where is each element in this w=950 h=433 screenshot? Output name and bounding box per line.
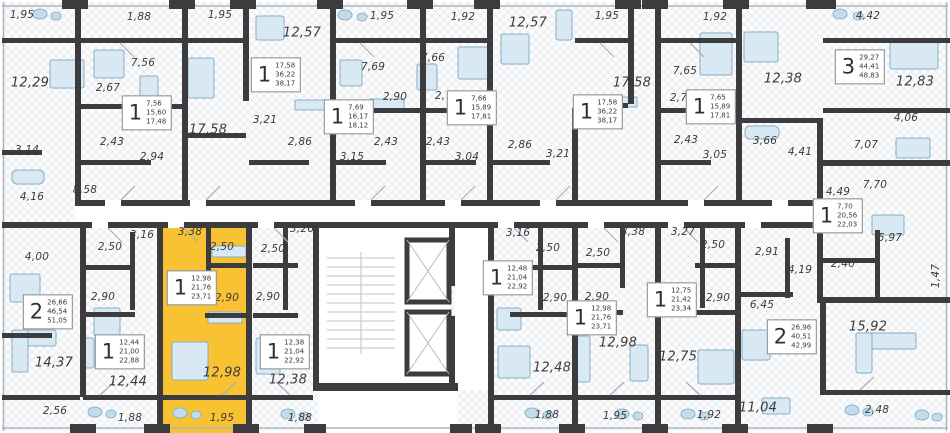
unit-area-value: 17,81 <box>710 112 730 121</box>
unit-area-value: 12,44 <box>119 338 139 347</box>
unit-info-box-selected[interactable]: 112,9821,7623,71 <box>167 270 217 305</box>
unit-area-value: 17,81 <box>471 113 491 122</box>
unit-area-value: 21,42 <box>671 295 691 304</box>
unit-area-value: 15,89 <box>710 102 730 111</box>
unit-area-value: 17,48 <box>146 118 166 127</box>
unit-area-value: 7,66 <box>471 94 491 103</box>
unit-area-value: 15,60 <box>146 108 166 117</box>
unit-area-value: 42,99 <box>791 342 811 351</box>
unit-rooms-count: 1 <box>174 278 187 299</box>
unit-info-box[interactable]: 17,5615,6017,48 <box>122 95 172 130</box>
unit-rooms-count: 1 <box>331 107 344 128</box>
unit-area-value: 36,22 <box>597 107 617 116</box>
unit-areas: 12,4421,0022,88 <box>119 338 139 365</box>
unit-area-value: 38,17 <box>597 117 617 126</box>
unit-area-value: 7,56 <box>146 99 166 108</box>
unit-area-value: 29,27 <box>859 53 879 62</box>
unit-area-value: 46,54 <box>47 307 67 316</box>
unit-info-box[interactable]: 226,9640,5142,99 <box>767 319 817 354</box>
unit-rooms-count: 2 <box>30 302 43 323</box>
unit-areas: 12,3821,0422,92 <box>284 338 304 365</box>
unit-area-value: 40,51 <box>791 332 811 341</box>
unit-area-value: 36,22 <box>275 70 295 79</box>
unit-area-value: 48,83 <box>859 72 879 81</box>
unit-area-value: 12,98 <box>191 274 211 283</box>
unit-areas: 26,9640,5142,99 <box>791 323 811 350</box>
unit-areas: 12,4821,0422,92 <box>507 264 527 291</box>
unit-rooms-count: 1 <box>454 98 467 119</box>
unit-area-value: 23,71 <box>591 323 611 332</box>
floor-plan: 1,951,881,951,951,921,951,924,4212,5712,… <box>0 0 950 433</box>
unit-area-value: 12,38 <box>284 338 304 347</box>
unit-rooms-count: 1 <box>693 97 706 118</box>
unit-rooms-count: 1 <box>102 342 115 363</box>
unit-area-value: 12,98 <box>591 304 611 313</box>
unit-info-box[interactable]: 117,5836,2238,17 <box>573 94 623 129</box>
unit-rooms-count: 1 <box>580 102 593 123</box>
staircase <box>327 252 395 354</box>
unit-info-box[interactable]: 17,6615,8917,81 <box>447 90 497 125</box>
unit-info-box[interactable]: 17,6916,1718,12 <box>324 99 374 134</box>
unit-area-value: 22,92 <box>507 283 527 292</box>
unit-info-box[interactable]: 112,7521,4223,34 <box>647 282 697 317</box>
unit-area-value: 18,12 <box>348 122 368 131</box>
unit-info-box[interactable]: 17,7020,5622,03 <box>813 198 863 233</box>
unit-info-box[interactable]: 226,6646,5451,05 <box>23 294 73 329</box>
unit-area-value: 21,76 <box>191 283 211 292</box>
unit-rooms-count: 2 <box>774 327 787 348</box>
unit-info-box[interactable]: 112,3821,0422,92 <box>260 334 310 369</box>
unit-area-value: 21,00 <box>119 347 139 356</box>
unit-area-value: 21,04 <box>284 347 304 356</box>
unit-area-value: 51,05 <box>47 317 67 326</box>
unit-info-box[interactable]: 329,2744,4148,83 <box>835 49 885 84</box>
unit-area-value: 23,34 <box>671 305 691 314</box>
unit-area-value: 12,48 <box>507 264 527 273</box>
unit-area-value: 23,71 <box>191 293 211 302</box>
unit-areas: 29,2744,4148,83 <box>859 53 879 80</box>
unit-areas: 7,7020,5622,03 <box>837 202 857 229</box>
unit-areas: 12,7521,4223,34 <box>671 286 691 313</box>
unit-areas: 7,5615,6017,48 <box>146 99 166 126</box>
unit-area-value: 26,96 <box>791 323 811 332</box>
unit-areas: 17,5836,2238,17 <box>275 61 295 88</box>
unit-area-value: 21,04 <box>507 273 527 282</box>
unit-area-value: 22,03 <box>837 221 857 230</box>
unit-rooms-count: 1 <box>267 342 280 363</box>
unit-area-value: 7,65 <box>710 93 730 102</box>
unit-area-value: 26,66 <box>47 298 67 307</box>
unit-rooms-count: 1 <box>820 206 833 227</box>
unit-area-value: 17,58 <box>597 98 617 107</box>
unit-rooms-count: 1 <box>258 65 271 86</box>
unit-rooms-count: 1 <box>574 308 587 329</box>
unit-area-value: 22,92 <box>284 357 304 366</box>
unit-info-box[interactable]: 117,5836,2238,17 <box>251 57 301 92</box>
unit-areas: 7,6916,1718,12 <box>348 103 368 130</box>
unit-area-value: 12,75 <box>671 286 691 295</box>
unit-area-value: 17,58 <box>275 61 295 70</box>
unit-areas: 26,6646,5451,05 <box>47 298 67 325</box>
unit-area-value: 15,89 <box>471 103 491 112</box>
unit-rooms-count: 1 <box>490 268 503 289</box>
unit-area-value: 7,69 <box>348 103 368 112</box>
unit-info-box[interactable]: 17,6515,8917,81 <box>686 89 736 124</box>
unit-rooms-count: 1 <box>129 103 142 124</box>
unit-areas: 12,9821,7623,71 <box>591 304 611 331</box>
unit-info-box[interactable]: 112,9821,7623,71 <box>567 300 617 335</box>
unit-areas: 12,9821,7623,71 <box>191 274 211 301</box>
unit-area-value: 20,56 <box>837 211 857 220</box>
unit-area-value: 38,17 <box>275 80 295 89</box>
unit-rooms-count: 1 <box>654 290 667 311</box>
unit-area-value: 16,17 <box>348 112 368 121</box>
unit-areas: 7,6615,8917,81 <box>471 94 491 121</box>
unit-areas: 17,5836,2238,17 <box>597 98 617 125</box>
unit-area-value: 44,41 <box>859 62 879 71</box>
unit-info-box[interactable]: 112,4821,0422,92 <box>483 260 533 295</box>
unit-area-value: 22,88 <box>119 357 139 366</box>
unit-area-value: 21,76 <box>591 313 611 322</box>
unit-rooms-count: 3 <box>842 57 855 78</box>
unit-areas: 7,6515,8917,81 <box>710 93 730 120</box>
unit-area-value: 7,70 <box>837 202 857 211</box>
unit-info-box[interactable]: 112,4421,0022,88 <box>95 334 145 369</box>
